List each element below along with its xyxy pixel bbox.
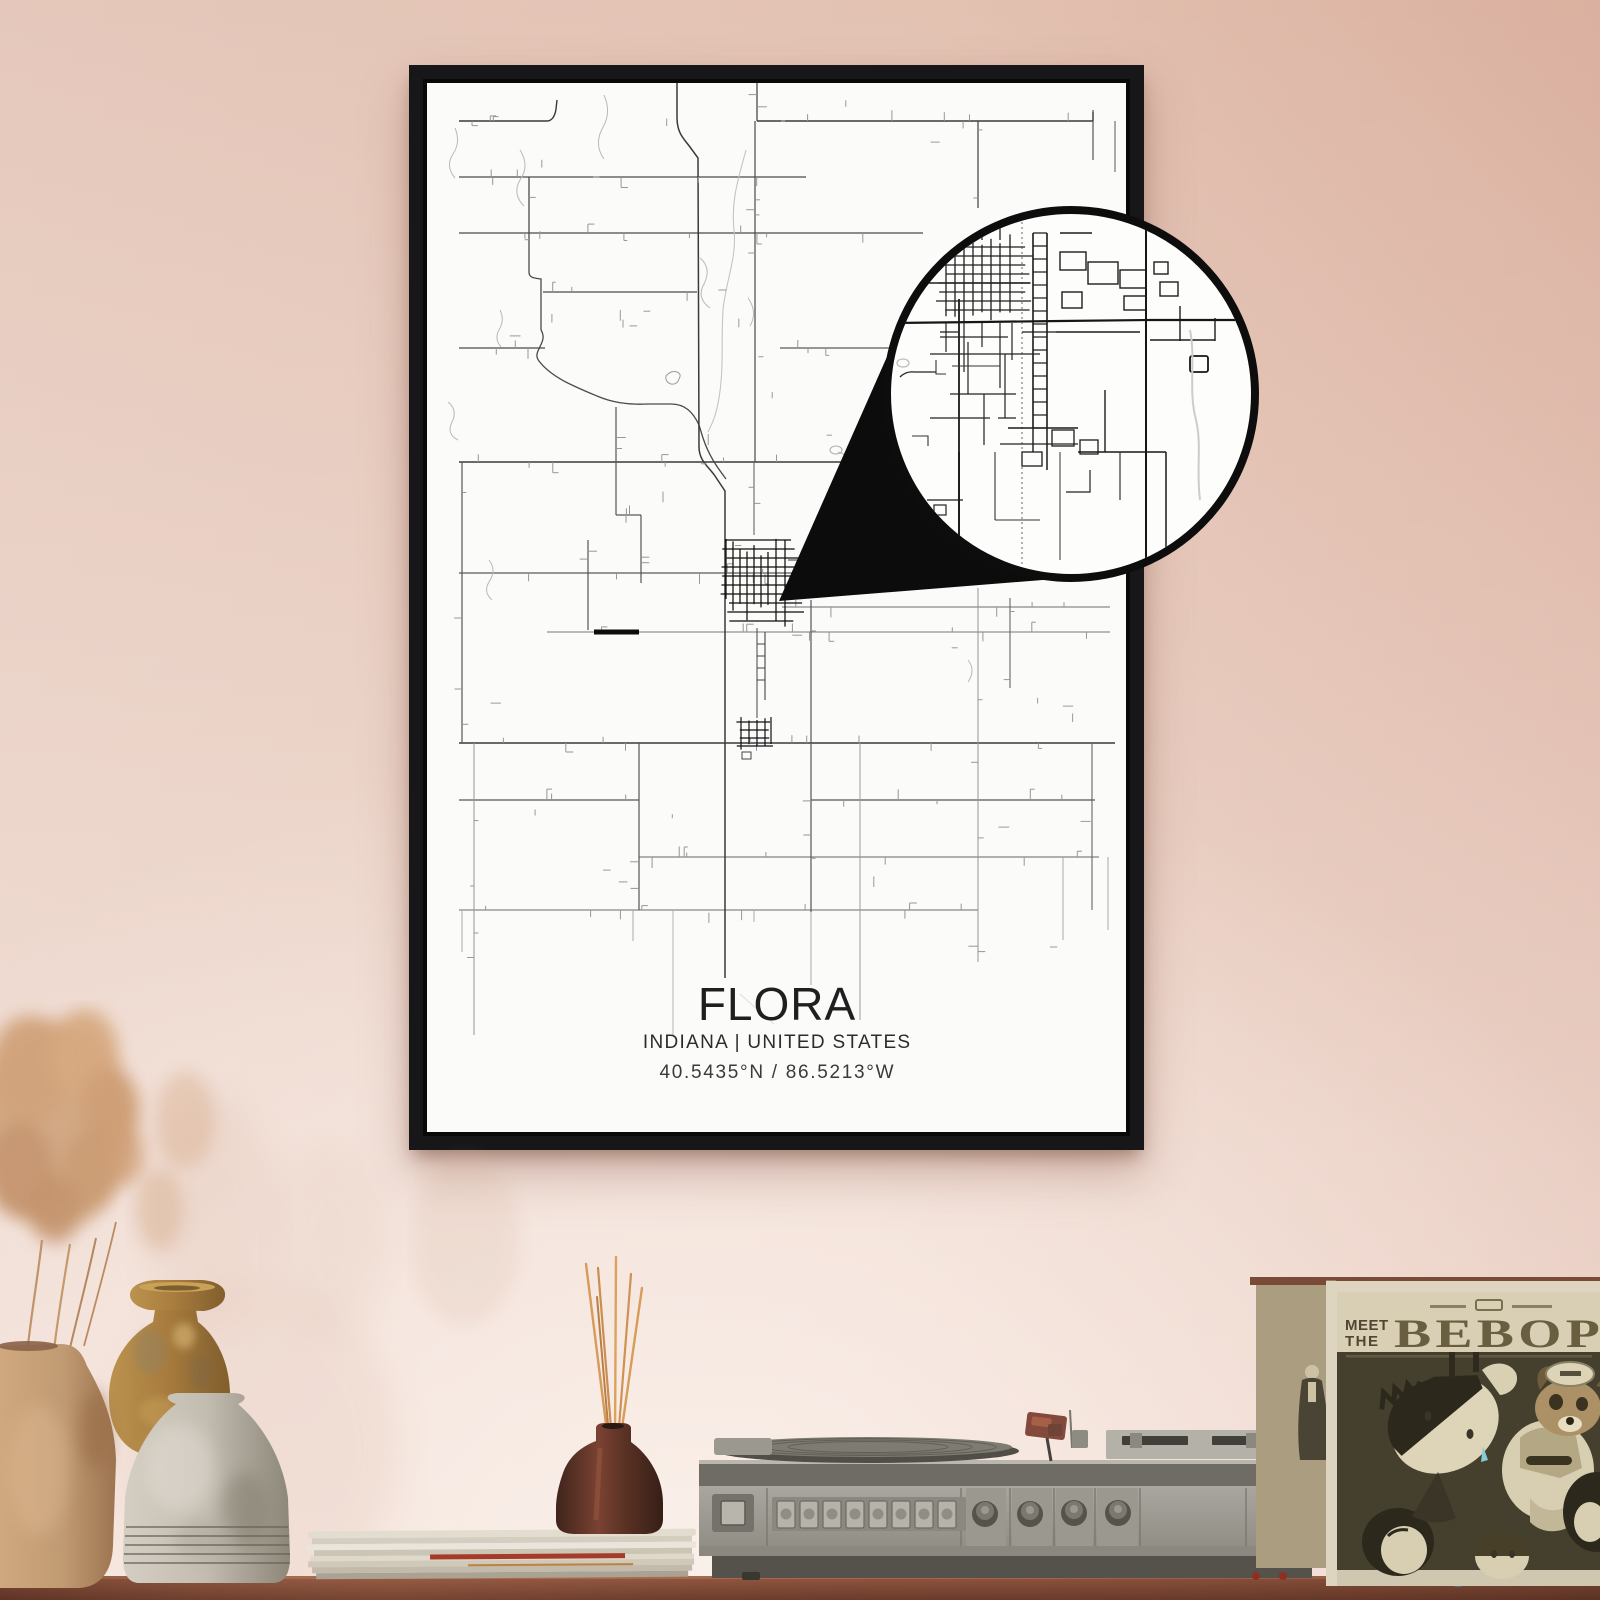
svg-text:BEBOP: BEBOP [1394, 1311, 1600, 1356]
svg-text:MEET: MEET [1345, 1317, 1389, 1334]
svg-text:THE: THE [1345, 1333, 1380, 1350]
